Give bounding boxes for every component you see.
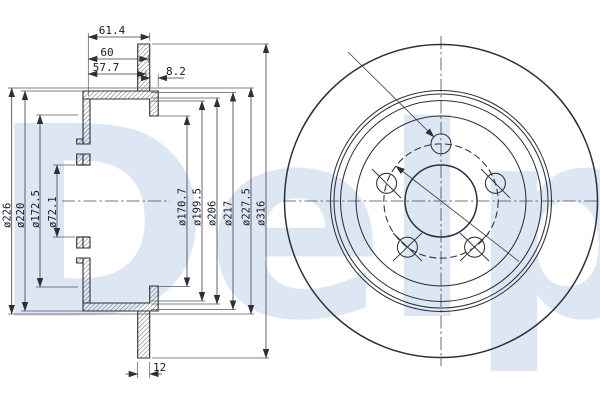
dim-text-12: 12: [153, 361, 166, 374]
dim-text-8-2: 8.2: [166, 65, 186, 78]
label-dia-220: ø220: [15, 203, 27, 228]
dim-text-57-7: 57.7: [93, 61, 120, 74]
technical-drawing: Delphi: [0, 0, 600, 400]
label-dia-316: ø316: [256, 201, 268, 226]
label-dia-199-5: ø199.5: [192, 188, 204, 226]
hub-plate-top-b: [83, 154, 90, 165]
hub-boss-top-b: [77, 154, 83, 165]
hub-boss-top-a: [77, 139, 83, 144]
label-dia-227-5: ø227.5: [241, 188, 253, 226]
hub-plate-bottom-b: [83, 237, 90, 248]
hub-boss-bottom-b: [77, 237, 83, 248]
hub-boss-bottom-a: [77, 258, 83, 263]
friction-ring-top: [138, 44, 150, 91]
label-dia-72-1: ø72.1: [47, 196, 59, 228]
label-dia-226: ø226: [2, 203, 14, 228]
label-dia-206: ø206: [207, 201, 219, 226]
hub-plate-bottom-a: [83, 258, 90, 303]
dim-text-60: 60: [100, 46, 113, 59]
label-dia-172-5: ø172.5: [30, 190, 42, 228]
label-dia-170-7: ø170.7: [177, 188, 189, 226]
friction-ring-bottom: [138, 311, 150, 358]
hub-plate-top-a: [83, 99, 90, 144]
brake-disc-drawing: Delphi: [0, 0, 600, 400]
dim-text-61-4: 61.4: [99, 24, 126, 37]
label-dia-217: ø217: [223, 201, 235, 226]
